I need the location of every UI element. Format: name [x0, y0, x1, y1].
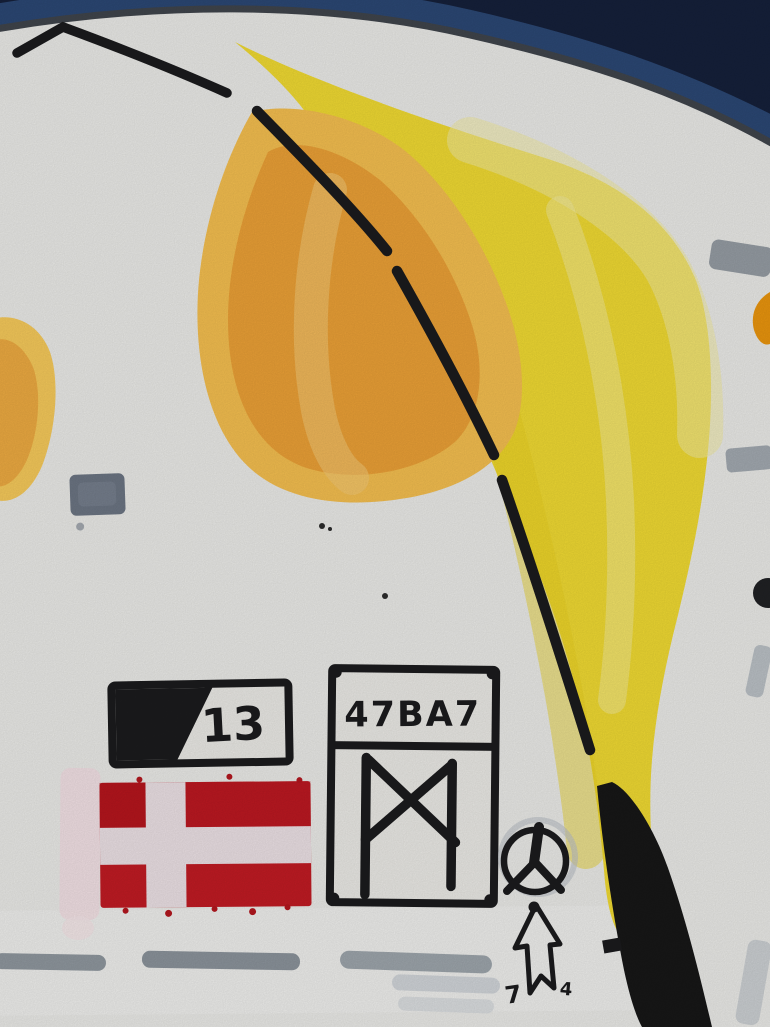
- paper-texture-overlay: [0, 0, 770, 1027]
- painting-canvas: 13 47BA7 7 4: [0, 0, 770, 1027]
- painting-photo: 13 47BA7 7 4: [0, 0, 770, 1027]
